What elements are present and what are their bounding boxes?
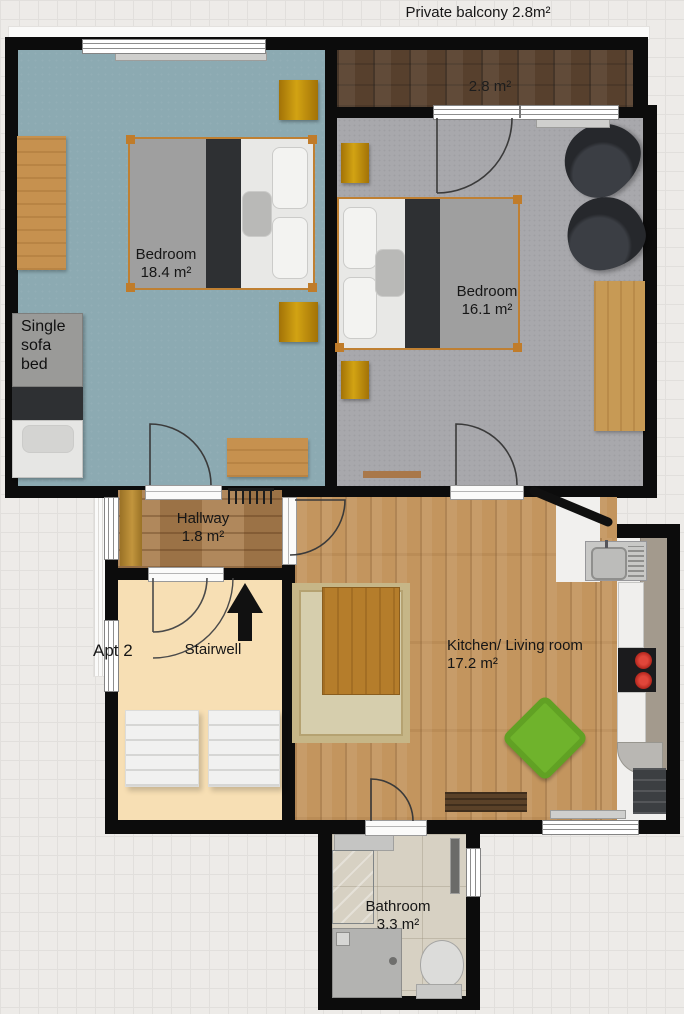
- balcony-area-label: 2.8 m²: [440, 78, 540, 96]
- room-area: 3.3 m²: [338, 916, 458, 934]
- bedroom-left-label: Bedroom 18.4 m²: [106, 246, 226, 282]
- room-area: 1.8 m²: [143, 528, 263, 546]
- room-name: Kitchen/ Living room: [447, 637, 622, 655]
- bedroom-right-label: Bedroom 16.1 m²: [427, 283, 547, 319]
- door-arc-bathroom: [371, 779, 413, 821]
- floor-plan: Single sofa bed: [0, 0, 684, 1014]
- room-area: 18.4 m²: [106, 264, 226, 282]
- plan-title: Private balcony 2.8m²: [368, 4, 588, 22]
- room-name: Bathroom: [338, 898, 458, 916]
- room-name: Bedroom: [427, 283, 547, 301]
- kitchen-living-label: Kitchen/ Living room 17.2 m²: [447, 637, 622, 673]
- door-arc-hallway-kitchen: [290, 500, 345, 555]
- room-area: 16.1 m²: [427, 301, 547, 319]
- door-arc-bedroom-right: [456, 424, 517, 485]
- door-arc-bedroom-left: [150, 424, 211, 485]
- apartment-label: Apt 2: [93, 642, 153, 660]
- entry-door-angled: [534, 491, 608, 522]
- door-swing-overlay: [0, 0, 684, 1014]
- stairwell-label: Stairwell: [163, 641, 263, 659]
- hallway-label: Hallway 1.8 m²: [143, 510, 263, 546]
- room-name: Bedroom: [106, 246, 226, 264]
- bathroom-label: Bathroom 3.3 m²: [338, 898, 458, 934]
- room-area: 17.2 m²: [447, 655, 622, 673]
- door-arc-stairwell: [153, 578, 207, 632]
- room-name: Hallway: [143, 510, 263, 528]
- door-arc-balcony: [437, 118, 512, 193]
- plan-title-text: Private balcony 2.8m²: [405, 4, 550, 21]
